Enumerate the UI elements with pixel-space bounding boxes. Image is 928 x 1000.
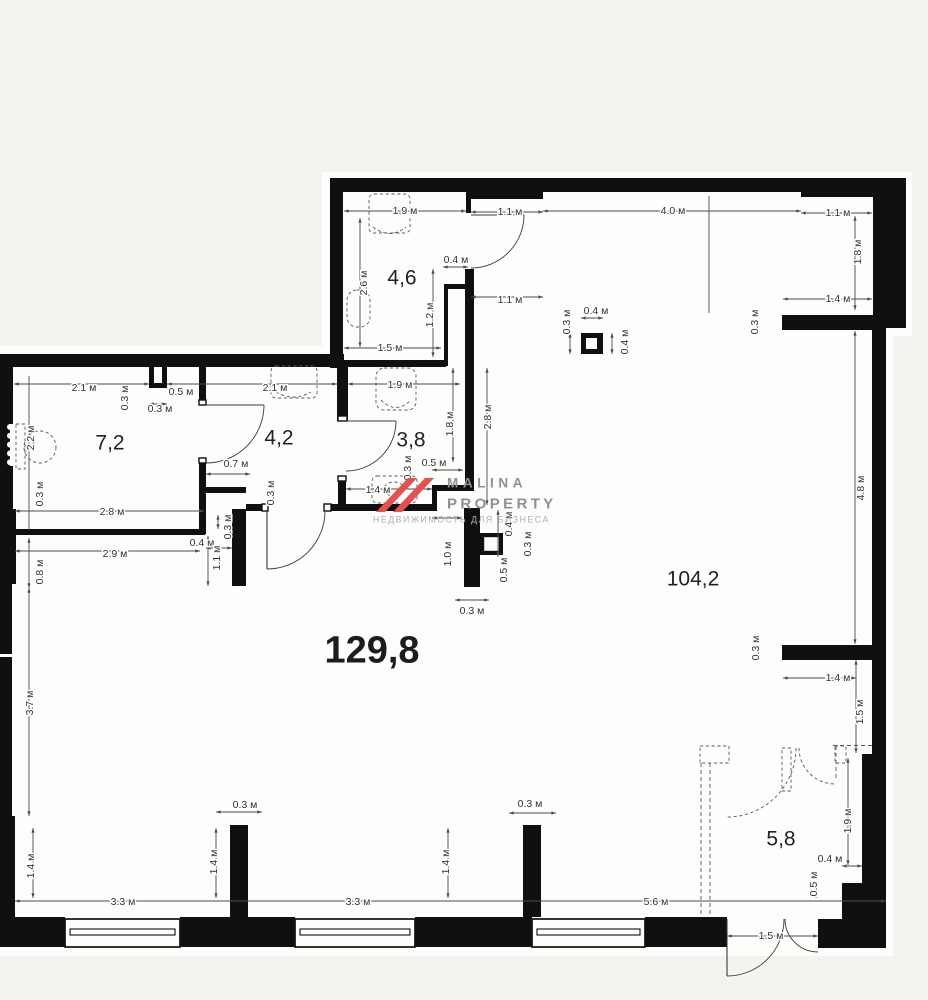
svg-text:MALINA: MALINA bbox=[447, 476, 527, 491]
svg-text:1.5 м: 1.5 м bbox=[854, 700, 866, 725]
svg-text:0.3 м: 0.3 м bbox=[460, 605, 485, 617]
svg-text:2.2 м: 2.2 м bbox=[25, 426, 37, 451]
svg-text:129,8: 129,8 bbox=[324, 630, 419, 672]
svg-text:0.5 м: 0.5 м bbox=[422, 457, 447, 469]
svg-text:0.8 м: 0.8 м bbox=[34, 560, 46, 585]
svg-text:0.4 м: 0.4 м bbox=[818, 853, 843, 865]
svg-text:1.5 м: 1.5 м bbox=[759, 930, 784, 942]
svg-text:4,2: 4,2 bbox=[264, 427, 293, 450]
svg-text:7,2: 7,2 bbox=[95, 432, 124, 455]
svg-text:1.0 м: 1.0 м bbox=[442, 542, 454, 567]
svg-text:0.3 м: 0.3 м bbox=[522, 532, 534, 557]
svg-text:0.4 м: 0.4 м bbox=[444, 254, 469, 266]
svg-text:0.5 м: 0.5 м bbox=[498, 558, 510, 583]
svg-text:2.9 м: 2.9 м bbox=[103, 548, 128, 560]
svg-text:НЕДВИЖИМОСТЬ ДЛЯ БИЗНЕСА: НЕДВИЖИМОСТЬ ДЛЯ БИЗНЕСА bbox=[373, 515, 550, 525]
svg-text:4.0 м: 4.0 м bbox=[661, 205, 686, 217]
svg-text:0.3 м: 0.3 м bbox=[518, 798, 543, 810]
svg-text:0.3 м: 0.3 м bbox=[265, 481, 277, 506]
svg-text:2.1 м: 2.1 м bbox=[263, 382, 288, 394]
svg-text:0.4 м: 0.4 м bbox=[619, 330, 631, 355]
svg-text:0.3 м: 0.3 м bbox=[34, 482, 46, 507]
svg-text:2.8 м: 2.8 м bbox=[100, 506, 125, 518]
svg-text:1.5 м: 1.5 м bbox=[378, 342, 403, 354]
svg-text:0.3 м: 0.3 м bbox=[233, 799, 258, 811]
svg-text:1.4 м: 1.4 м bbox=[366, 484, 391, 496]
svg-text:4.8 м: 4.8 м bbox=[855, 476, 867, 501]
svg-text:1.9 м: 1.9 м bbox=[393, 205, 418, 217]
svg-text:2.8 м: 2.8 м bbox=[482, 405, 494, 430]
svg-text:3,8: 3,8 bbox=[396, 429, 425, 452]
svg-text:1.1 м: 1.1 м bbox=[826, 207, 851, 219]
svg-text:1.8 м: 1.8 м bbox=[852, 240, 864, 265]
svg-text:1.2 м: 1.2 м bbox=[424, 303, 436, 328]
svg-text:1.4 м: 1.4 м bbox=[208, 850, 220, 875]
svg-text:0.3 м: 0.3 м bbox=[749, 310, 761, 335]
svg-text:0.3 м: 0.3 м bbox=[561, 310, 573, 335]
svg-text:1.8 м: 1.8 м bbox=[444, 412, 456, 437]
svg-text:3.3 м: 3.3 м bbox=[111, 896, 136, 908]
svg-text:1.4 м: 1.4 м bbox=[440, 850, 452, 875]
svg-text:0.3 м: 0.3 м bbox=[148, 403, 173, 415]
svg-text:3.7 м: 3.7 м bbox=[24, 691, 36, 716]
svg-text:2.6 м: 2.6 м bbox=[358, 271, 370, 296]
svg-text:5.6 м: 5.6 м bbox=[644, 896, 669, 908]
svg-text:0.5 м: 0.5 м bbox=[808, 872, 820, 897]
svg-text:PROPERTY: PROPERTY bbox=[447, 496, 557, 513]
svg-text:1.9 м: 1.9 м bbox=[842, 809, 854, 834]
svg-text:104,2: 104,2 bbox=[667, 568, 720, 591]
svg-text:1.9 м: 1.9 м bbox=[388, 379, 413, 391]
svg-text:1.4 м: 1.4 м bbox=[25, 854, 37, 879]
svg-text:0.5 м: 0.5 м bbox=[169, 386, 194, 398]
svg-text:0.3 м: 0.3 м bbox=[402, 456, 414, 481]
svg-text:0.3 м: 0.3 м bbox=[119, 386, 131, 411]
svg-text:0.3 м: 0.3 м bbox=[750, 636, 762, 661]
svg-text:4,6: 4,6 bbox=[387, 267, 416, 290]
svg-text:2.1 м: 2.1 м bbox=[72, 382, 97, 394]
svg-text:1.1 м: 1.1 м bbox=[211, 546, 223, 571]
svg-text:0.7 м: 0.7 м bbox=[224, 458, 249, 470]
svg-text:1.4 м: 1.4 м bbox=[826, 672, 851, 684]
svg-text:1.4 м: 1.4 м bbox=[826, 293, 851, 305]
svg-text:0.3 м: 0.3 м bbox=[222, 515, 234, 540]
svg-text:1.1 м: 1.1 м bbox=[498, 294, 523, 306]
svg-text:0.4 м: 0.4 м bbox=[584, 305, 609, 317]
svg-text:5,8: 5,8 bbox=[766, 828, 795, 851]
svg-text:1.1 м: 1.1 м bbox=[498, 206, 523, 218]
svg-text:3.3 м: 3.3 м bbox=[346, 896, 371, 908]
